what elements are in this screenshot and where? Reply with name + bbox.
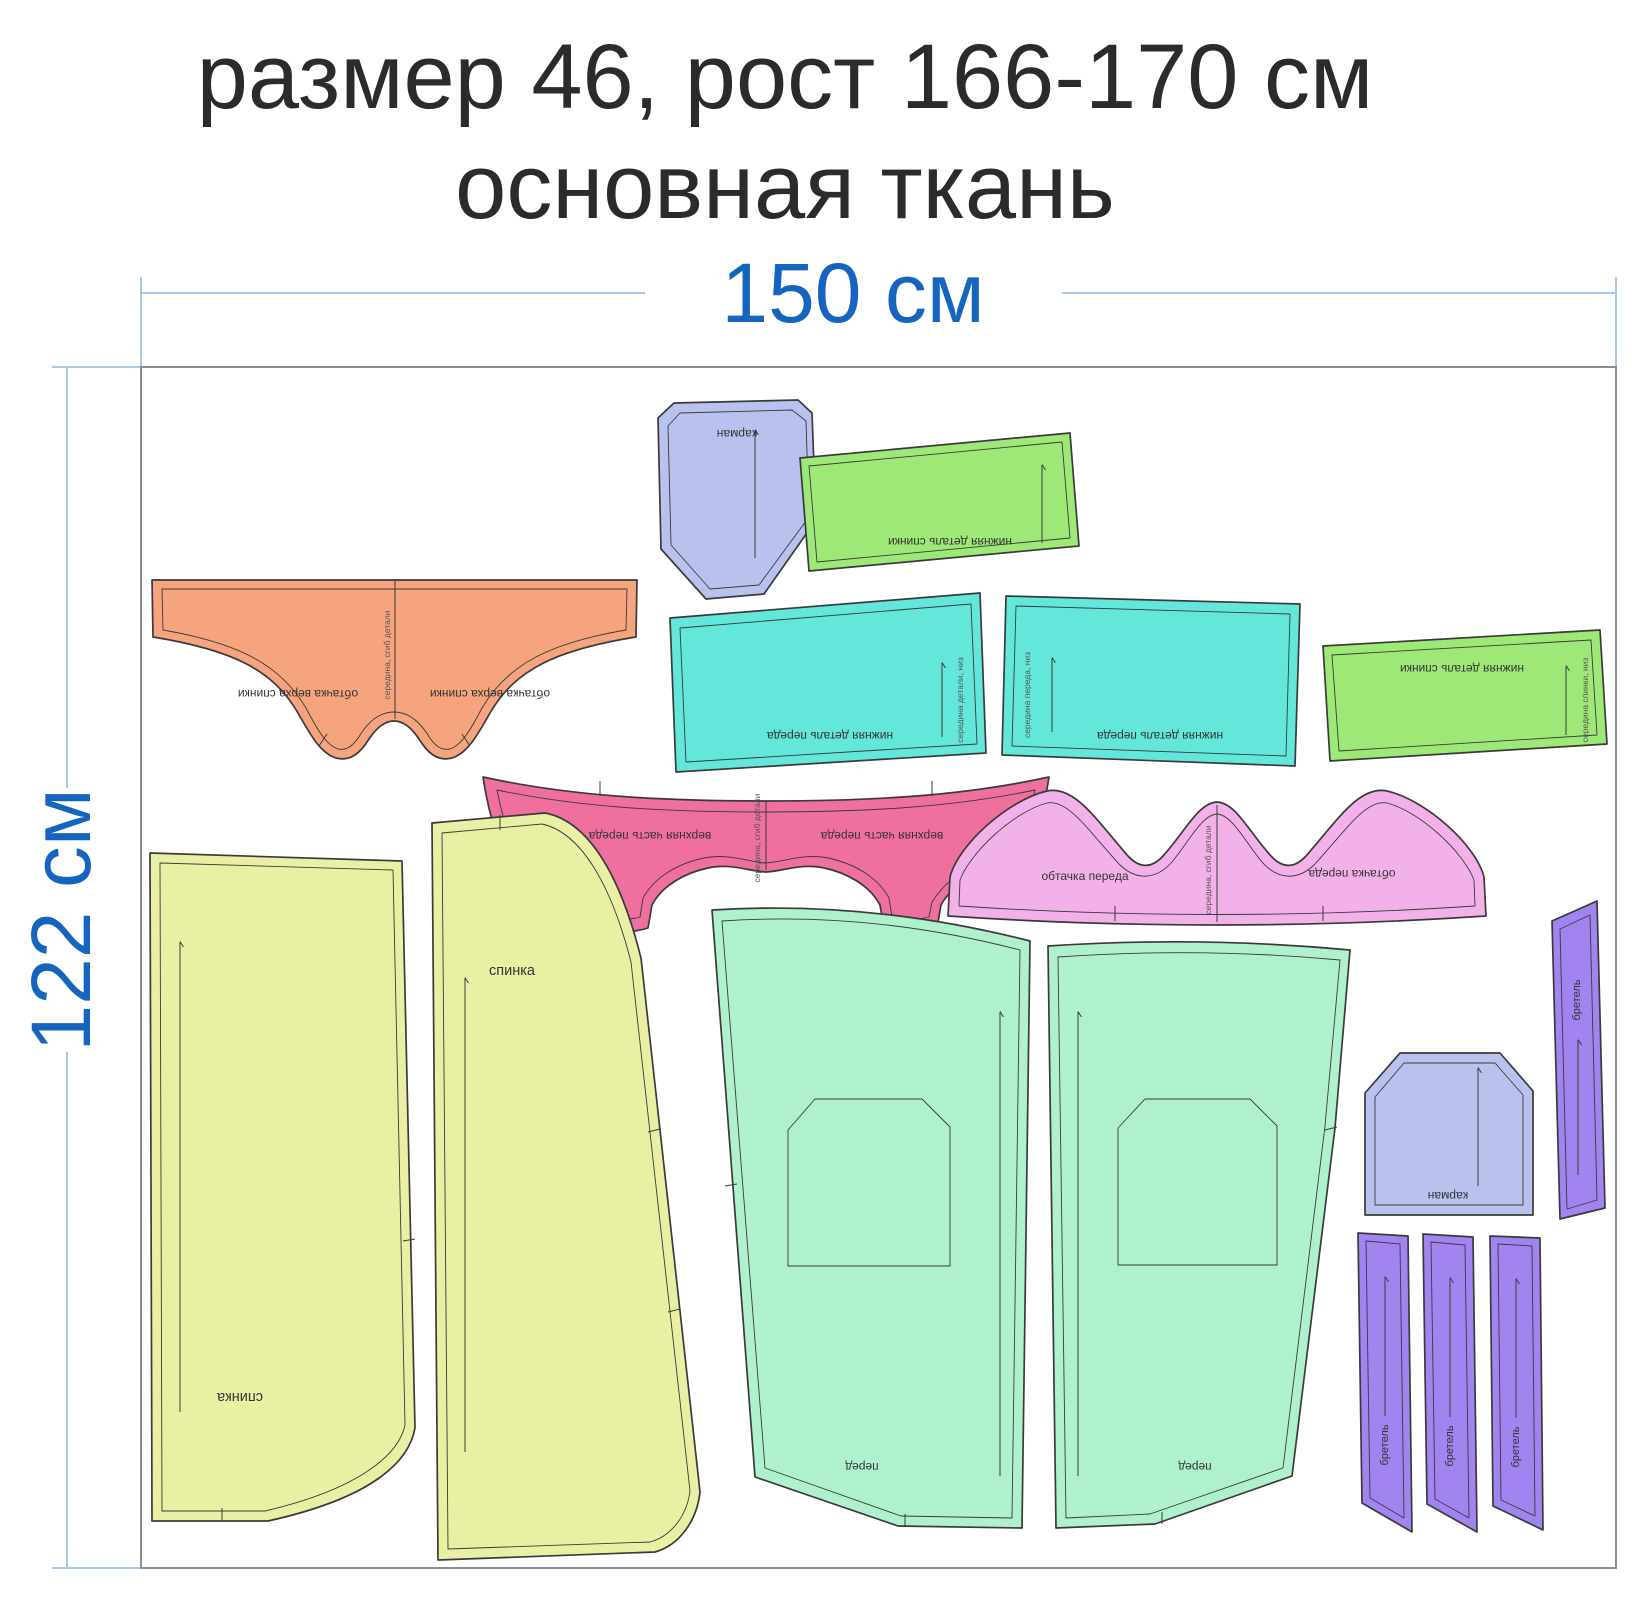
piece-label: нижняя деталь спинки [1400, 662, 1524, 676]
piece-label: обтачка переда [1308, 867, 1395, 881]
edge-note: середина переда, низ [1022, 652, 1032, 738]
piece-front-left: перед [712, 908, 1030, 1528]
piece-label: карман [1428, 1189, 1468, 1203]
piece-label: бретель [1444, 1425, 1456, 1466]
fold-note: середина, сгиб детали [752, 793, 762, 882]
piece-strap-3: бретель [1490, 1236, 1543, 1530]
piece-label: спинка [216, 1389, 263, 1405]
piece-back-left: спинка [150, 853, 415, 1521]
width-dimension: 150 см [141, 246, 1616, 366]
piece-label: нижняя деталь переда [1097, 729, 1223, 743]
piece-strap-tall: бретель [1552, 901, 1605, 1219]
piece-front-lower-left: середина детали, низ нижняя деталь перед… [670, 593, 986, 772]
piece-back-lower-right: середина спинки, низ нижняя деталь спинк… [1323, 630, 1607, 761]
piece-label: перед [1178, 1460, 1211, 1474]
fold-note: середина, сгиб детали [1203, 825, 1213, 914]
piece-back-lower-left: нижняя деталь спинки [800, 433, 1079, 571]
edge-note: середина детали, низ [955, 657, 965, 743]
edge-note: середина спинки, низ [1580, 658, 1590, 743]
title-line2: основная ткань [455, 136, 1115, 238]
piece-front-left-shape[interactable] [712, 908, 1030, 1528]
piece-label: перед [845, 1460, 878, 1474]
piece-label: спинка [489, 963, 536, 979]
piece-strap-1: бретель [1358, 1233, 1412, 1532]
piece-label: карман [717, 427, 757, 441]
piece-front-facing: середина, сгиб детали обтачка переда обт… [948, 790, 1486, 925]
piece-label: бретель [1510, 1426, 1522, 1467]
piece-label: верхняя часть переда [821, 829, 944, 843]
height-dimension-label: 122 см [14, 788, 108, 1051]
piece-front-lower-left-shape[interactable] [670, 593, 986, 772]
pattern-layout-page: размер 46, рост 166-170 см основная ткан… [0, 0, 1648, 1599]
height-dimension: 122 см [14, 367, 140, 1568]
fold-note: середина, сгиб детали [382, 610, 392, 699]
piece-label: бретель [1571, 979, 1583, 1020]
piece-label: бретель [1379, 1424, 1391, 1465]
piece-label: обтачка верха спинки [238, 687, 358, 701]
piece-pocket-right: карман [1365, 1053, 1533, 1215]
piece-front-lower-right: середина переда, низ нижняя деталь перед… [1002, 596, 1300, 766]
pattern-layout-canvas: размер 46, рост 166-170 см основная ткан… [0, 0, 1648, 1599]
piece-label: верхняя часть переда [589, 829, 712, 843]
piece-strap-2: бретель [1423, 1234, 1477, 1532]
piece-back-lower-right-shape[interactable] [1323, 630, 1607, 761]
piece-label: нижняя деталь переда [767, 729, 893, 743]
piece-label: нижняя деталь спинки [888, 535, 1012, 549]
piece-label: обтачка переда [1041, 869, 1128, 883]
title-line1: размер 46, рост 166-170 см [197, 26, 1374, 128]
width-dimension-label: 150 см [721, 246, 984, 340]
piece-back-left-shape[interactable] [150, 853, 415, 1521]
piece-label: обтачка верха спинки [430, 687, 550, 701]
